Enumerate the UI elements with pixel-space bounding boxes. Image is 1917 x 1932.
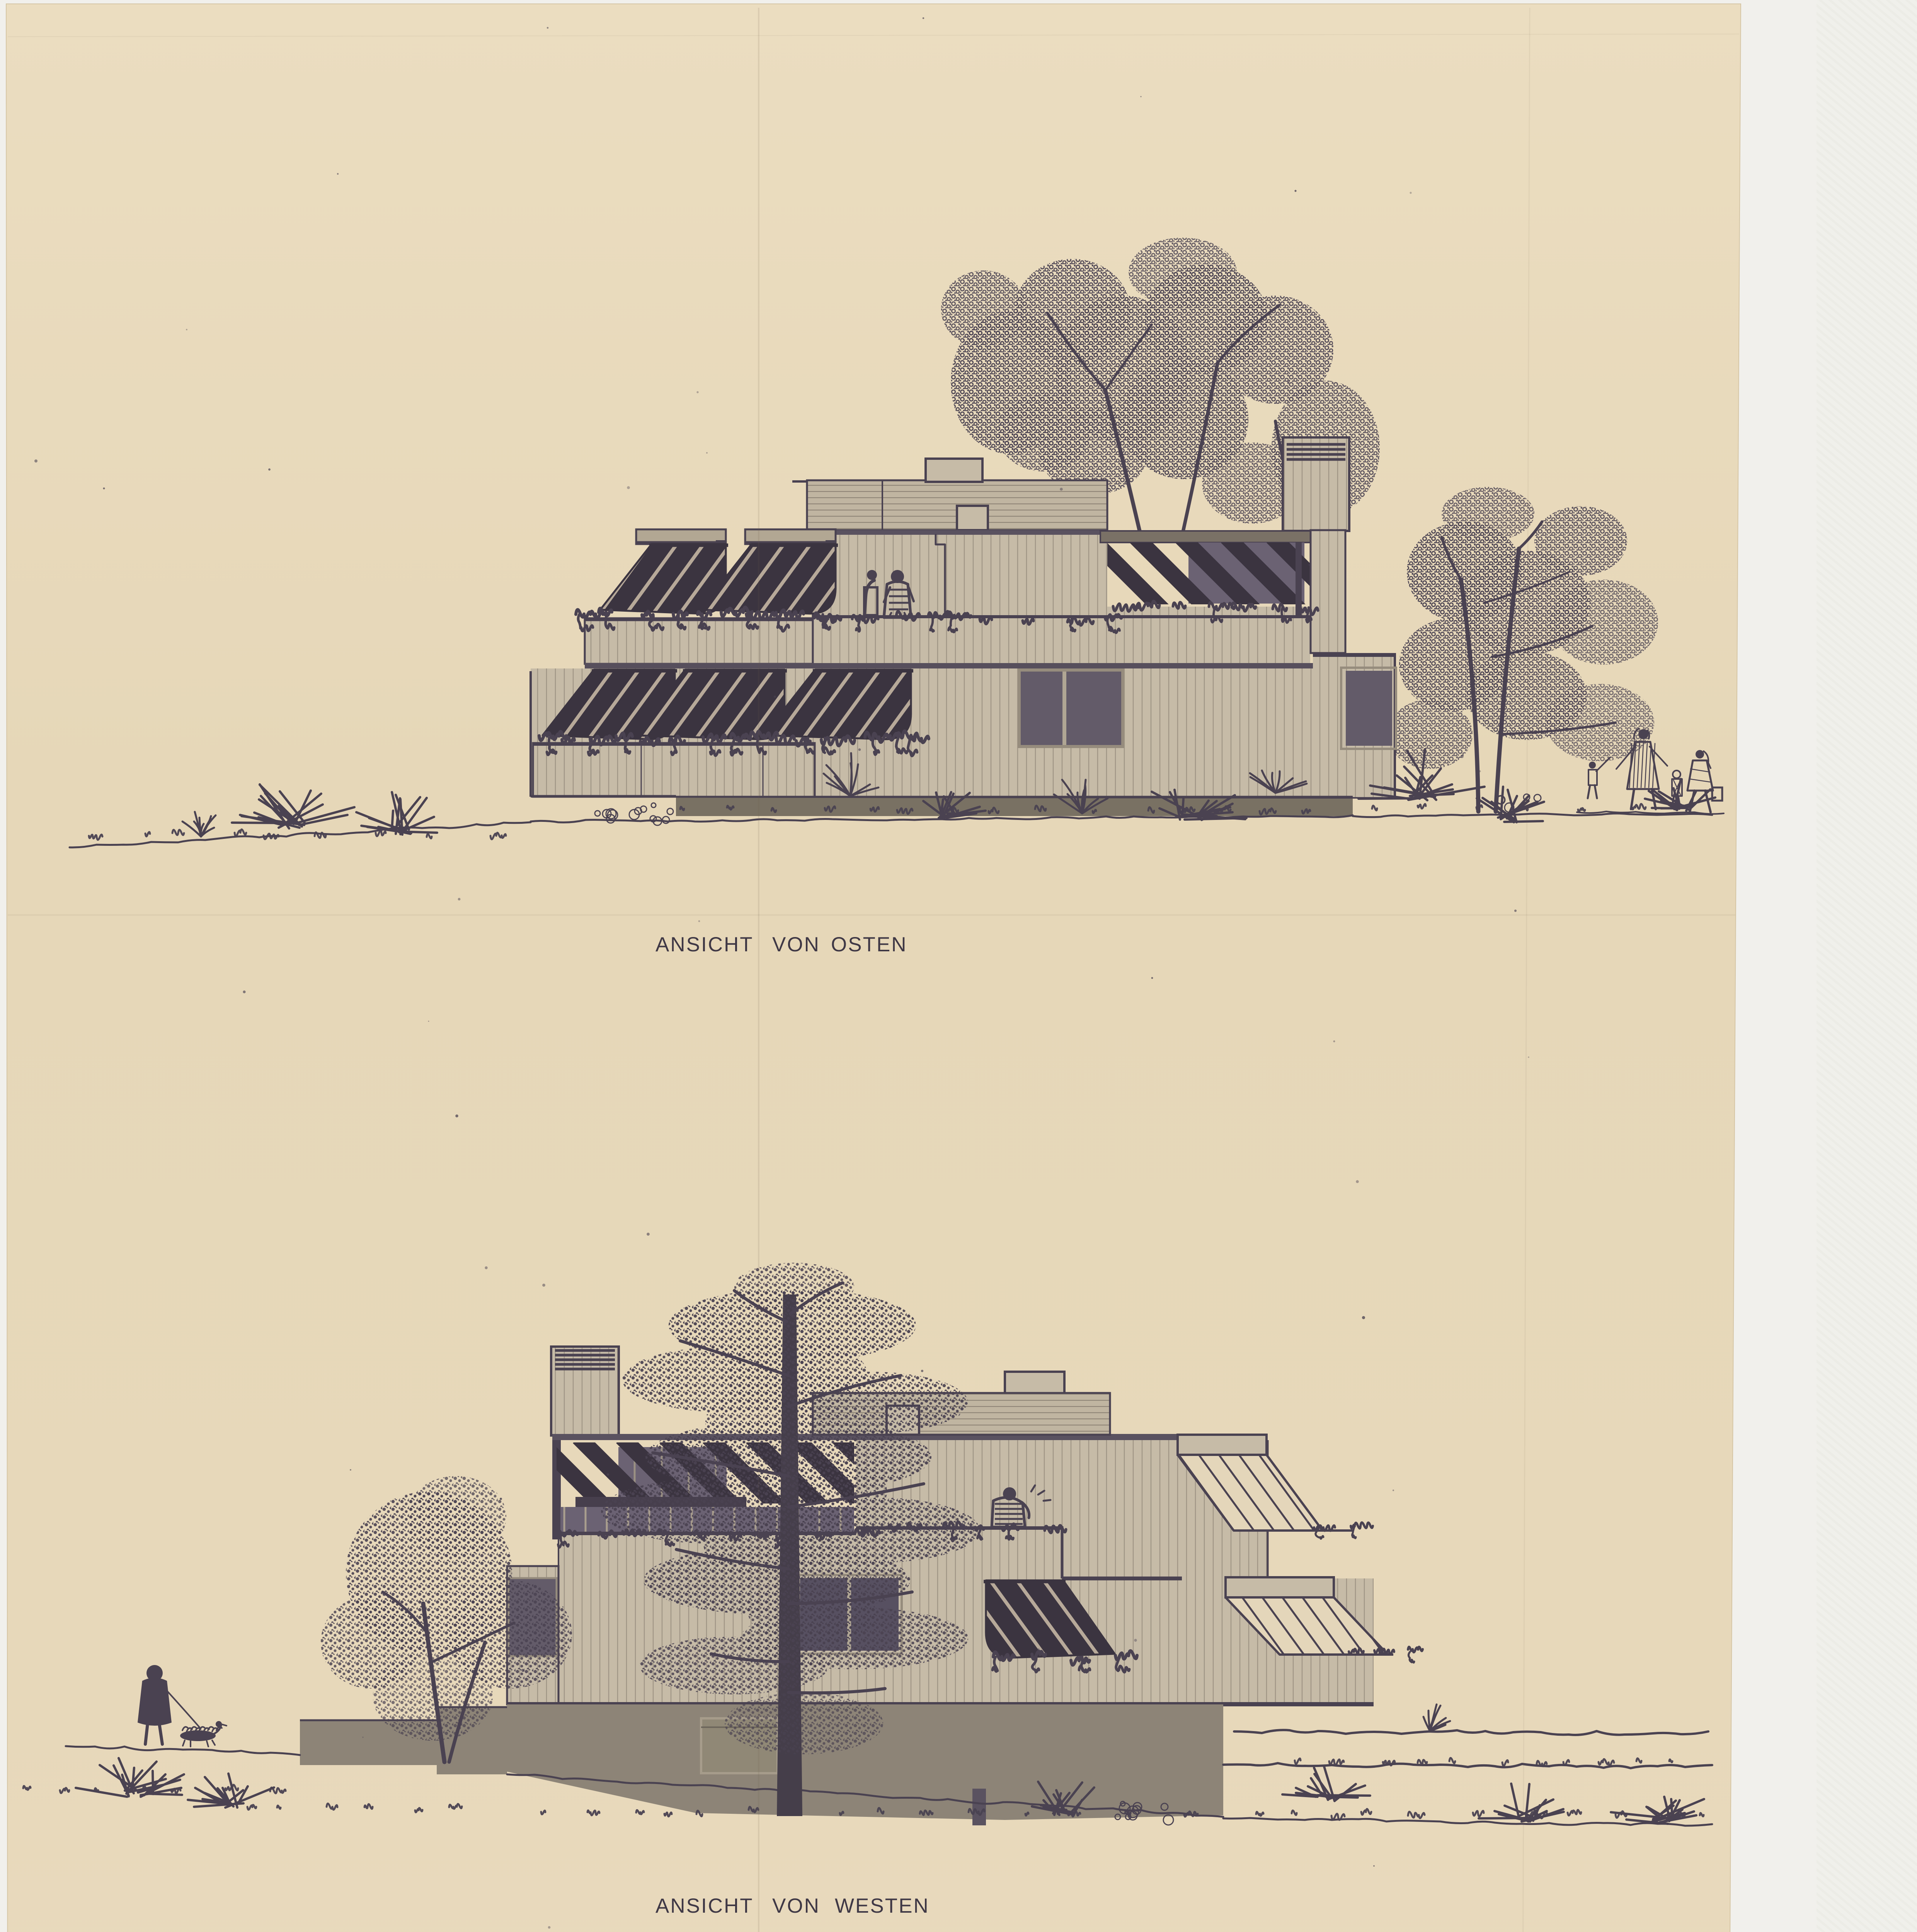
svg-text:VON: VON bbox=[772, 1895, 820, 1917]
svg-text:VON: VON bbox=[772, 933, 820, 956]
svg-text:ANSICHT: ANSICHT bbox=[655, 1895, 754, 1917]
svg-text:OSTEN: OSTEN bbox=[831, 933, 907, 956]
svg-text:WESTEN: WESTEN bbox=[835, 1895, 930, 1917]
svg-text:ANSICHT: ANSICHT bbox=[655, 933, 754, 956]
